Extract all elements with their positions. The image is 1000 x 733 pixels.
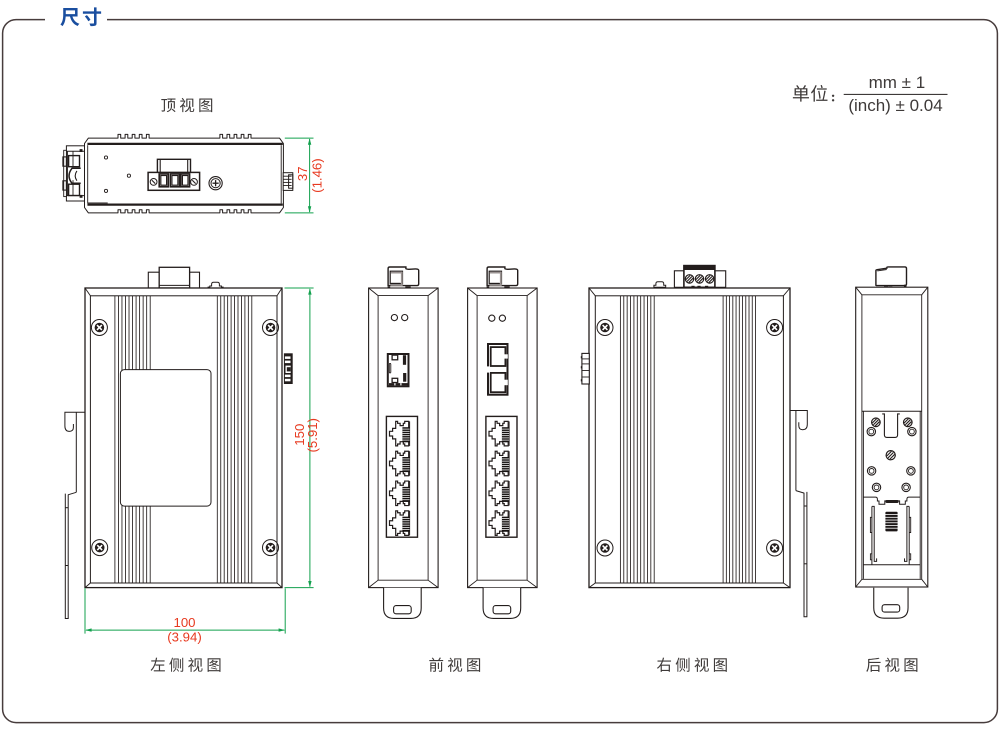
svg-text:37: 37 [295,166,310,181]
svg-text:mm ± 1: mm ± 1 [869,73,926,92]
svg-text:(5.91): (5.91) [305,418,320,452]
svg-text:(3.94): (3.94) [167,630,201,645]
svg-text:(inch) ± 0.04: (inch) ± 0.04 [848,96,942,115]
svg-text:100: 100 [173,615,195,630]
svg-text:(1.46): (1.46) [309,158,324,192]
